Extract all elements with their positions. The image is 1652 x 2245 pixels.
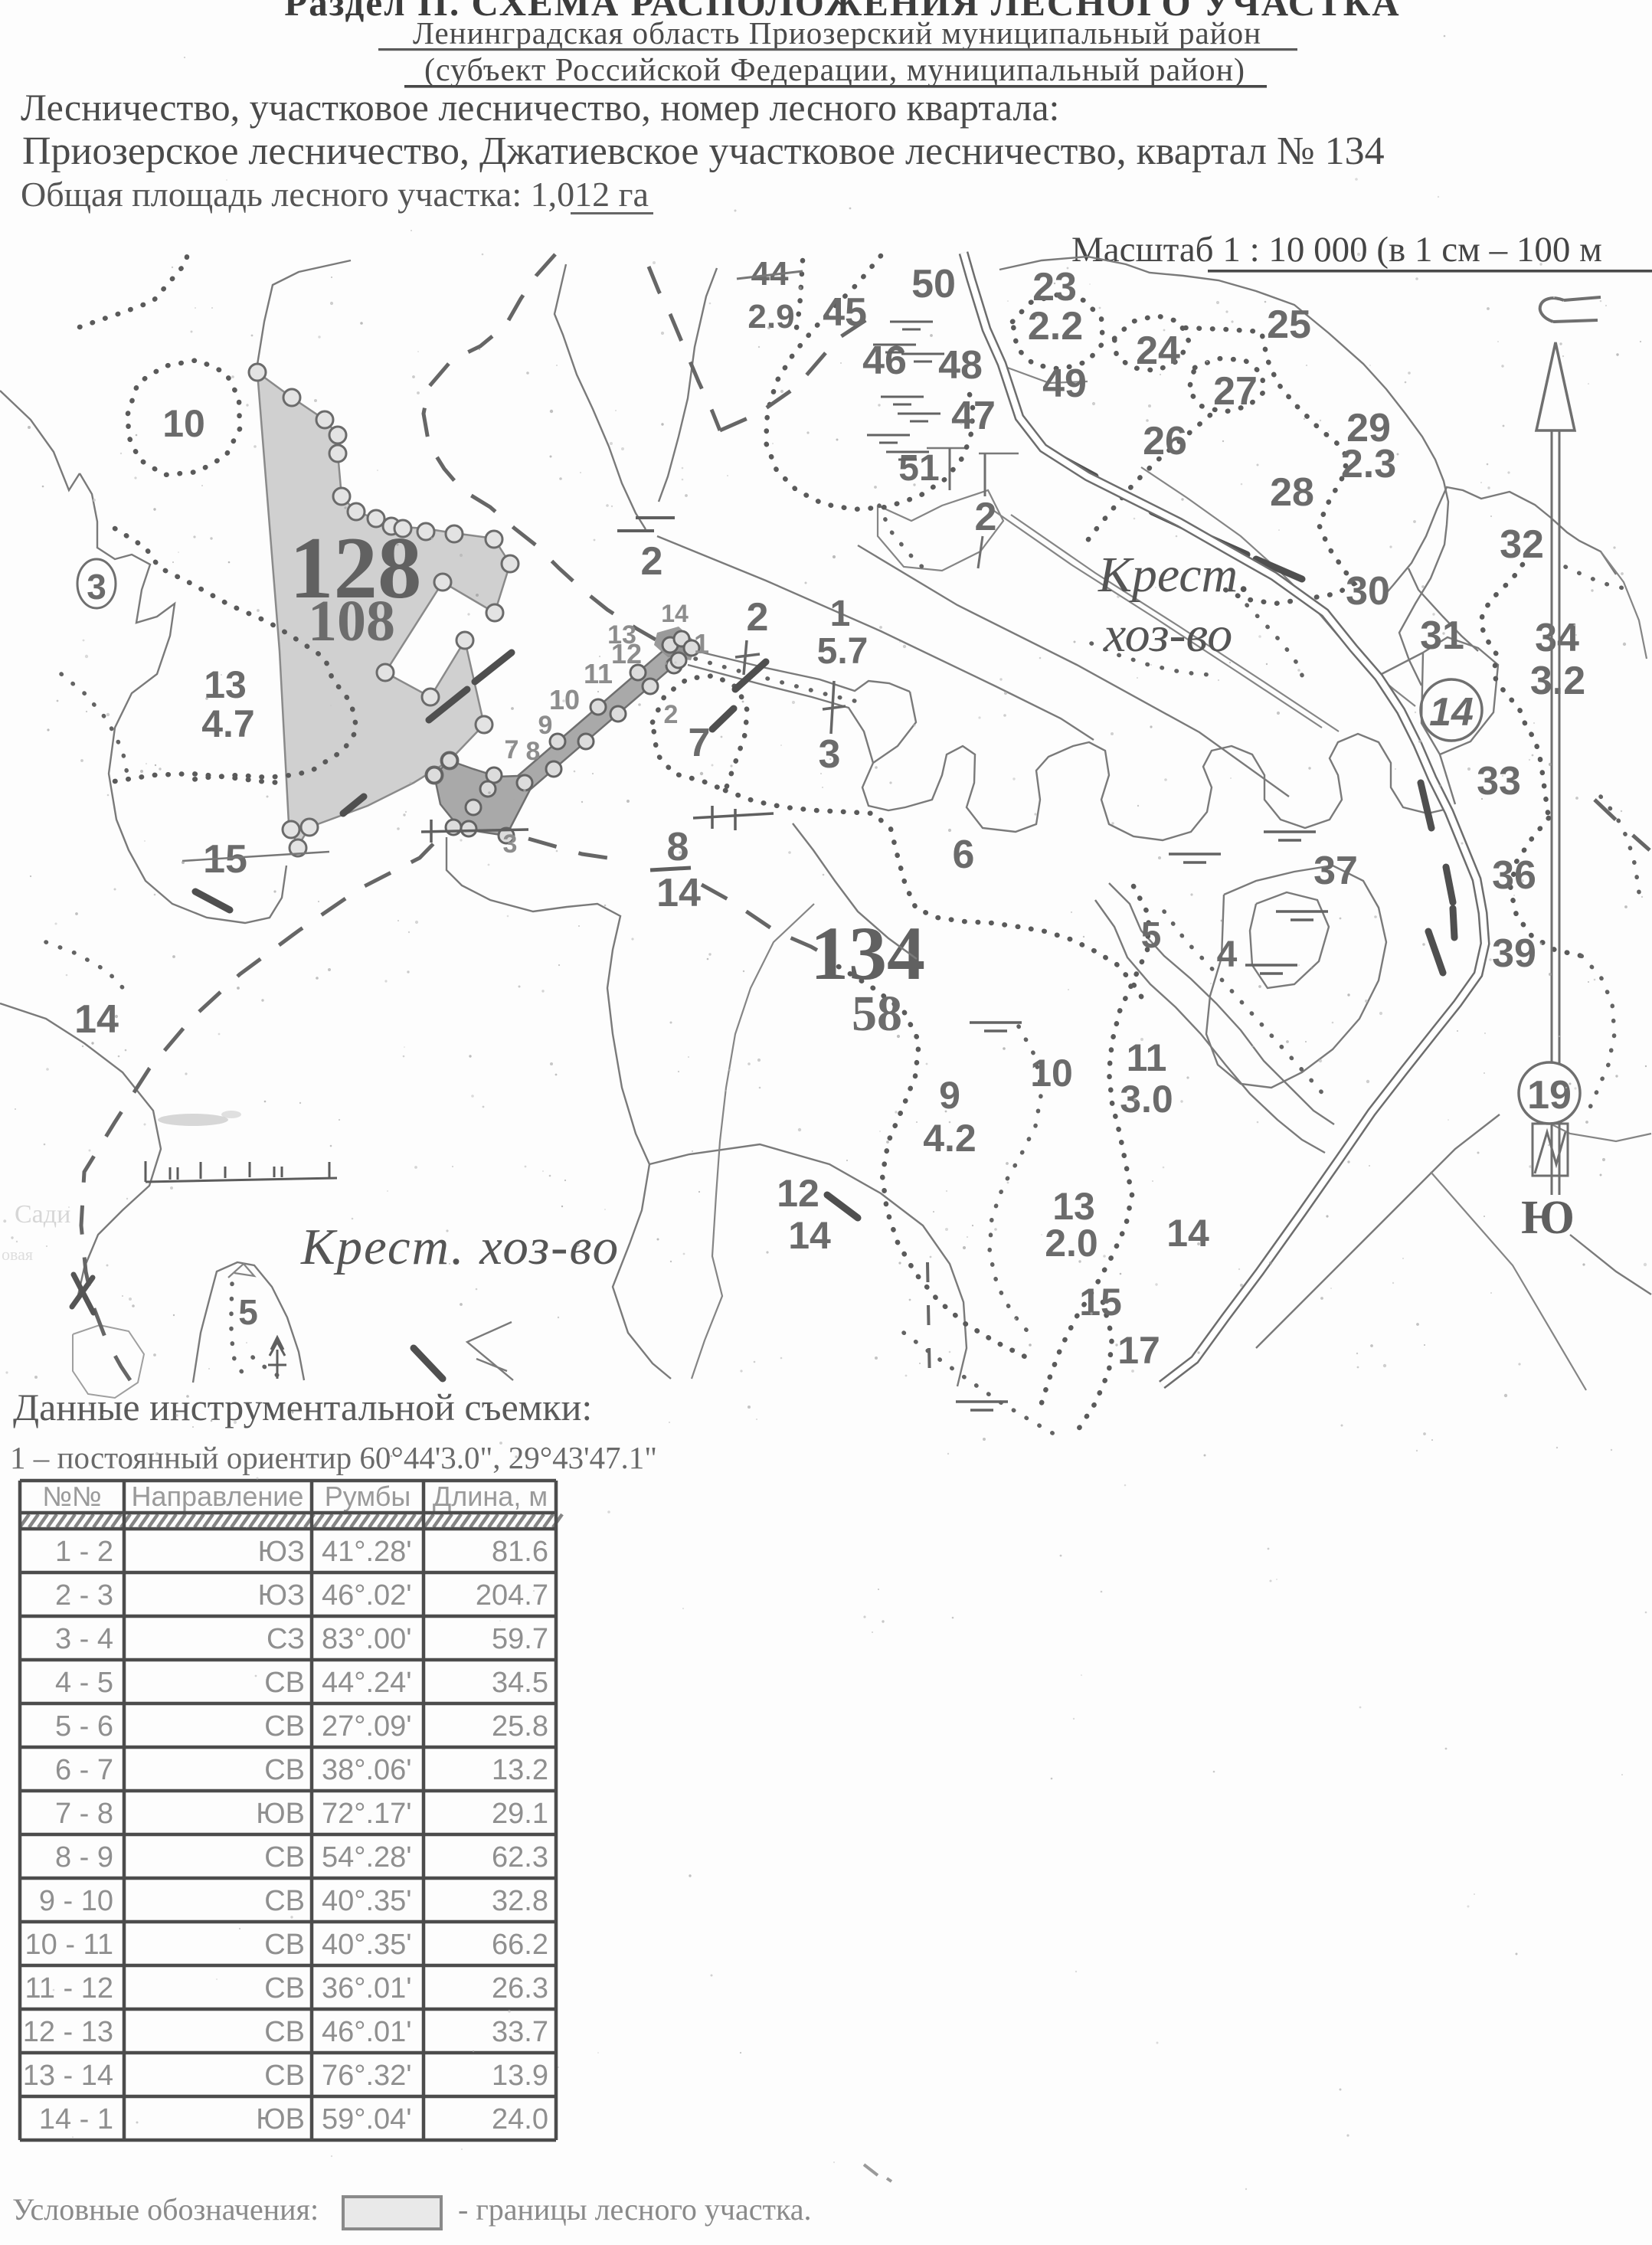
svg-text:66.2: 66.2 — [492, 1929, 548, 1961]
svg-text:Крест.: Крест. — [1098, 547, 1251, 603]
svg-text:7 - 8: 7 - 8 — [55, 1798, 113, 1830]
svg-text:9 - 10: 9 - 10 — [39, 1885, 113, 1917]
svg-text:овая: овая — [2, 1245, 33, 1264]
svg-text:31: 31 — [1420, 614, 1464, 658]
svg-text:32: 32 — [1500, 522, 1544, 567]
svg-text:Длина, м: Длина, м — [433, 1481, 548, 1512]
svg-text:СВ: СВ — [264, 1754, 305, 1786]
svg-text:Ленинградская область Приозер: Ленинградская область Приозерский муници… — [413, 15, 1261, 51]
svg-text:13 - 14: 13 - 14 — [23, 2060, 113, 2092]
svg-text:6: 6 — [953, 833, 975, 877]
svg-text:7: 7 — [505, 735, 519, 764]
svg-text:. Сади: . Сади — [2, 1200, 70, 1229]
svg-text:Условные обозначения:: Условные обозначения: — [12, 2192, 319, 2227]
svg-text:11: 11 — [1127, 1036, 1167, 1079]
svg-text:10 - 11: 10 - 11 — [25, 1929, 113, 1961]
svg-text:Лесничество, участковое леснич: Лесничество, участковое лесничество, ном… — [21, 86, 1059, 129]
svg-text:ЮЗ: ЮЗ — [258, 1579, 305, 1612]
svg-text:СВ: СВ — [264, 1841, 305, 1874]
svg-text:81.6: 81.6 — [492, 1536, 548, 1568]
svg-text:2.2: 2.2 — [1028, 304, 1083, 349]
svg-text:3.0: 3.0 — [1120, 1078, 1173, 1121]
svg-text:ЮВ: ЮВ — [256, 2103, 305, 2135]
svg-text:5.7: 5.7 — [817, 631, 869, 672]
svg-text:34.5: 34.5 — [492, 1667, 548, 1699]
svg-text:29.1: 29.1 — [492, 1798, 548, 1830]
svg-text:Крест. хоз-во: Крест. хоз-во — [300, 1219, 620, 1275]
svg-text:№№: №№ — [42, 1481, 101, 1512]
svg-text:25.8: 25.8 — [492, 1710, 548, 1743]
svg-text:204.7: 204.7 — [476, 1579, 548, 1612]
svg-text:СВ: СВ — [264, 2060, 305, 2092]
svg-text:15: 15 — [1079, 1281, 1122, 1324]
svg-text:СВ: СВ — [264, 1972, 305, 2004]
svg-text:3: 3 — [819, 732, 841, 777]
svg-text:Направление: Направление — [132, 1481, 304, 1512]
svg-text:38°.06': 38°.06' — [322, 1754, 412, 1786]
svg-text:СВ: СВ — [264, 1667, 305, 1699]
svg-text:1 - 2: 1 - 2 — [55, 1536, 113, 1568]
svg-text:8: 8 — [526, 737, 541, 766]
svg-text:45: 45 — [823, 290, 867, 335]
svg-text:10: 10 — [549, 684, 580, 715]
svg-text:24.0: 24.0 — [492, 2103, 548, 2135]
svg-text:ЮЗ: ЮЗ — [258, 1536, 305, 1568]
svg-text:5: 5 — [238, 1292, 258, 1332]
svg-text:37: 37 — [1313, 849, 1358, 893]
svg-text:40°.35': 40°.35' — [322, 1929, 412, 1961]
svg-text:14: 14 — [788, 1214, 831, 1257]
svg-text:39: 39 — [1492, 931, 1536, 976]
svg-text:49: 49 — [1042, 362, 1087, 406]
svg-text:108: 108 — [308, 589, 395, 653]
svg-text:72°.17': 72°.17' — [322, 1798, 412, 1830]
svg-text:54°.28': 54°.28' — [322, 1841, 412, 1874]
svg-text:14 - 1: 14 - 1 — [39, 2103, 113, 2135]
svg-text:Масштаб 1 : 10 000 (в 1 см – 1: Масштаб 1 : 10 000 (в 1 см – 100 м — [1071, 230, 1602, 270]
svg-text:2.3: 2.3 — [1341, 442, 1396, 486]
svg-text:7: 7 — [689, 721, 711, 765]
svg-text:25: 25 — [1267, 303, 1311, 347]
svg-text:14: 14 — [1166, 1212, 1209, 1255]
svg-text:8 - 9: 8 - 9 — [55, 1841, 113, 1874]
svg-text:24: 24 — [1136, 329, 1180, 373]
svg-text:46°.01': 46°.01' — [322, 2016, 412, 2048]
svg-text:13: 13 — [607, 620, 636, 650]
svg-text:14: 14 — [1429, 690, 1474, 735]
svg-text:33.7: 33.7 — [492, 2016, 548, 2048]
svg-text:28: 28 — [1270, 470, 1314, 515]
svg-text:58: 58 — [852, 986, 902, 1042]
svg-text:хоз-во: хоз-во — [1103, 607, 1232, 663]
svg-text:83°.00': 83°.00' — [322, 1623, 412, 1655]
svg-text:34: 34 — [1535, 616, 1579, 660]
svg-text:76°.32': 76°.32' — [322, 2060, 412, 2092]
svg-text:8: 8 — [667, 825, 689, 869]
svg-text:51: 51 — [898, 448, 939, 489]
svg-text:50: 50 — [911, 262, 956, 306]
svg-text:14: 14 — [656, 871, 701, 915]
svg-text:3.2: 3.2 — [1530, 659, 1585, 703]
svg-text:3: 3 — [503, 830, 518, 859]
svg-text:4: 4 — [1217, 934, 1238, 975]
svg-text:СЗ: СЗ — [267, 1623, 305, 1655]
svg-text:2.9: 2.9 — [747, 298, 794, 335]
svg-text:13.9: 13.9 — [492, 2060, 548, 2092]
svg-text:26.3: 26.3 — [492, 1972, 548, 2004]
svg-text:36°.01': 36°.01' — [322, 1972, 412, 2004]
svg-text:48: 48 — [938, 343, 983, 388]
svg-text:14: 14 — [74, 997, 119, 1042]
svg-text:11: 11 — [584, 658, 613, 689]
svg-text:59°.04': 59°.04' — [322, 2103, 412, 2135]
svg-text:2: 2 — [747, 595, 769, 640]
svg-text:4.7: 4.7 — [201, 702, 255, 745]
svg-text:27°.09': 27°.09' — [322, 1710, 412, 1743]
svg-text:6 - 7: 6 - 7 — [55, 1754, 113, 1786]
svg-text:46°.02': 46°.02' — [322, 1579, 412, 1612]
svg-text:1 – постоянный ориентир 60°44': 1 – постоянный ориентир 60°44'3.0", 29°4… — [10, 1440, 657, 1475]
svg-text:1: 1 — [694, 628, 709, 659]
svg-text:4.2: 4.2 — [923, 1117, 976, 1160]
svg-text:17: 17 — [1117, 1329, 1160, 1372]
svg-text:36: 36 — [1492, 853, 1536, 898]
svg-text:Общая площадь лесного участка:: Общая площадь лесного участка: 1,012 га — [21, 175, 649, 214]
svg-text:Данные инструментальной съемки: Данные инструментальной съемки: — [13, 1386, 592, 1428]
svg-text:2 - 3: 2 - 3 — [55, 1579, 113, 1612]
svg-text:26: 26 — [1143, 419, 1187, 463]
svg-text:10: 10 — [1030, 1052, 1073, 1095]
svg-text:4 - 5: 4 - 5 — [55, 1667, 113, 1699]
svg-text:Ю: Ю — [1521, 1192, 1575, 1244]
svg-text:62.3: 62.3 — [492, 1841, 548, 1874]
svg-text:40°.35': 40°.35' — [322, 1885, 412, 1917]
svg-text:3: 3 — [87, 567, 106, 607]
svg-text:СВ: СВ — [264, 1710, 305, 1743]
svg-text:12 - 13: 12 - 13 — [23, 2016, 113, 2048]
svg-text:2: 2 — [975, 495, 997, 539]
svg-text:41°.28': 41°.28' — [322, 1536, 412, 1568]
svg-text:33: 33 — [1477, 759, 1521, 803]
svg-text:ЮВ: ЮВ — [256, 1798, 305, 1830]
svg-text:Румбы: Румбы — [325, 1481, 411, 1512]
svg-text:Приозерское лесничество, Джат: Приозерское лесничество, Джатиевское уча… — [22, 129, 1385, 173]
svg-text:12: 12 — [777, 1172, 819, 1215]
svg-text:5 - 6: 5 - 6 — [55, 1710, 113, 1743]
svg-text:- границы лесного участка.: - границы лесного участка. — [458, 2192, 812, 2227]
svg-text:23: 23 — [1032, 265, 1077, 309]
svg-text:5: 5 — [1141, 915, 1162, 956]
svg-text:47: 47 — [951, 394, 996, 438]
svg-text:СВ: СВ — [264, 1929, 305, 1961]
svg-text:14: 14 — [661, 600, 689, 627]
svg-text:СВ: СВ — [264, 1885, 305, 1917]
svg-text:32.8: 32.8 — [492, 1885, 548, 1917]
svg-text:13.2: 13.2 — [492, 1754, 548, 1786]
svg-text:СВ: СВ — [264, 2016, 305, 2048]
svg-text:2: 2 — [641, 539, 663, 584]
svg-text:2.0: 2.0 — [1045, 1222, 1098, 1265]
svg-text:44°.24': 44°.24' — [322, 1667, 412, 1699]
svg-text:19: 19 — [1527, 1073, 1572, 1118]
svg-text:10: 10 — [162, 402, 205, 445]
svg-text:59.7: 59.7 — [492, 1623, 548, 1655]
svg-text:9: 9 — [939, 1074, 960, 1117]
svg-text:27: 27 — [1213, 369, 1258, 414]
svg-text:11 - 12: 11 - 12 — [25, 1972, 113, 2004]
svg-text:13: 13 — [204, 663, 247, 706]
svg-text:(субъект Российской Федерации,: (субъект Российской Федерации, муниципал… — [424, 53, 1245, 88]
svg-text:2: 2 — [664, 700, 679, 729]
svg-text:3 - 4: 3 - 4 — [55, 1623, 113, 1655]
svg-text:1: 1 — [830, 594, 851, 634]
svg-text:30: 30 — [1346, 569, 1390, 614]
